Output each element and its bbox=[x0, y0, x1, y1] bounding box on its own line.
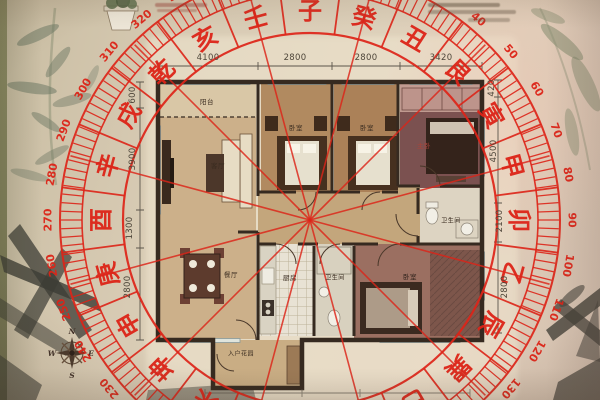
degree-label: 80 bbox=[560, 166, 576, 184]
mountain-char: 酉 bbox=[87, 208, 115, 232]
compass-tick bbox=[457, 29, 470, 45]
mountain-char: 庚 bbox=[91, 259, 124, 289]
dim-left-4: 2800 bbox=[123, 276, 133, 299]
compass-tick bbox=[485, 367, 501, 380]
compass-sector-spoke bbox=[277, 0, 285, 35]
compass-tick bbox=[437, 14, 449, 31]
mountain-char: 子 bbox=[298, 0, 322, 25]
degree-label: 100 bbox=[560, 253, 577, 278]
compass-tick bbox=[150, 29, 163, 45]
compass-tick bbox=[535, 260, 556, 264]
dim-right-3: 2100 bbox=[495, 210, 505, 233]
degree-label: 90 bbox=[566, 212, 579, 228]
compass-tick bbox=[186, 4, 197, 22]
compass-tick bbox=[537, 194, 558, 196]
dim-right-1: 420 bbox=[487, 79, 497, 96]
compass-tick bbox=[518, 313, 537, 322]
compass-tick bbox=[524, 135, 544, 142]
degree-label: 50 bbox=[501, 42, 521, 62]
room-label-bedroom3: 卧室 bbox=[403, 271, 417, 281]
compass-tick bbox=[410, 0, 419, 15]
compass-tick bbox=[171, 14, 183, 31]
compass-ring-circle bbox=[60, 0, 560, 400]
compass-tick bbox=[533, 168, 554, 172]
compass-tick bbox=[507, 96, 525, 107]
compass-center-line bbox=[310, 220, 374, 400]
dim-top-3: 2800 bbox=[355, 53, 378, 63]
mountain-char: 癸 bbox=[348, 1, 380, 35]
degree-label: 250 bbox=[54, 296, 74, 322]
room-label-bath-right: 卫生间 bbox=[441, 216, 461, 225]
compass-tick bbox=[73, 290, 93, 296]
dim-top-2: 2800 bbox=[284, 53, 307, 63]
compass-tick bbox=[507, 334, 525, 345]
compass-tick bbox=[515, 111, 534, 120]
compass-tick bbox=[114, 360, 131, 373]
mountain-char: 未 bbox=[188, 383, 223, 400]
compass-tick bbox=[499, 347, 516, 359]
compass-sector-spoke bbox=[334, 0, 342, 35]
compass-tick bbox=[527, 290, 547, 296]
room-label-living: 客厅 bbox=[211, 160, 225, 170]
compass-tick bbox=[119, 60, 135, 73]
degree-label: 280 bbox=[44, 162, 61, 187]
compass-tick bbox=[518, 119, 537, 128]
compass-tick bbox=[99, 341, 117, 352]
compass-tick bbox=[125, 53, 141, 67]
dim-right-2: 4500 bbox=[489, 140, 499, 163]
dim-top-4: 3420 bbox=[430, 53, 453, 63]
room-label-bedroom1: 卧室 bbox=[289, 122, 303, 132]
compass-tick bbox=[527, 143, 547, 149]
compass-tick bbox=[143, 35, 157, 51]
compass-tick bbox=[125, 373, 141, 387]
compass-tick bbox=[62, 236, 83, 237]
dim-right-4: 2800 bbox=[500, 276, 510, 299]
compass-tick bbox=[66, 267, 87, 271]
compass-tick bbox=[515, 320, 534, 329]
compass-tick bbox=[90, 103, 109, 113]
compass-tick bbox=[119, 367, 135, 380]
compass-tick bbox=[83, 119, 102, 128]
compass-tick bbox=[94, 334, 112, 345]
degree-label: 290 bbox=[54, 117, 74, 143]
compass-tick bbox=[503, 341, 521, 352]
compass-center-line bbox=[246, 220, 310, 400]
compass-tick bbox=[76, 298, 96, 305]
compass-tick bbox=[417, 0, 427, 19]
photo-of-fengshui-floorplan: N E S W 子癸丑艮寅甲卯乙辰巽巳丙午丁未坤申庚酉辛戌乾亥壬01020304… bbox=[0, 0, 600, 400]
mountain-char: 巳 bbox=[397, 383, 432, 400]
room-label-kitchen: 厨房 bbox=[283, 272, 297, 282]
dim-top-1: 4100 bbox=[197, 53, 220, 63]
compass-tick bbox=[535, 177, 556, 181]
illegible-text-smudge bbox=[428, 3, 500, 7]
degree-label: 70 bbox=[547, 121, 565, 140]
compass-tick bbox=[537, 203, 558, 204]
illegible-text-smudge bbox=[157, 9, 197, 12]
compass-tick bbox=[388, 0, 395, 6]
dim-left-1: 600 bbox=[128, 86, 138, 103]
compass-tick bbox=[90, 327, 109, 337]
compass-tick bbox=[490, 360, 507, 373]
compass-tick bbox=[538, 211, 559, 212]
compass-tick bbox=[73, 143, 93, 149]
compass-tick bbox=[104, 81, 121, 93]
mountain-char: 辛 bbox=[91, 151, 124, 181]
room-label-bedroom2: 卧室 bbox=[360, 122, 374, 132]
compass-tick bbox=[537, 244, 558, 246]
compass-tick bbox=[104, 347, 121, 359]
degree-label: 270 bbox=[42, 208, 55, 231]
compass-tick bbox=[157, 24, 170, 41]
compass-tick bbox=[65, 260, 86, 264]
compass-tick bbox=[479, 53, 495, 67]
mountain-char: 申 bbox=[111, 307, 147, 342]
compass-tick bbox=[86, 111, 105, 120]
compass-tick bbox=[537, 236, 558, 237]
mountain-char: 卯 bbox=[505, 208, 533, 232]
compass-tick bbox=[533, 267, 554, 271]
illegible-text-smudge bbox=[428, 10, 516, 14]
room-label-master: 主卧 bbox=[417, 140, 431, 150]
compass-tick bbox=[225, 0, 232, 6]
compass-tick bbox=[61, 211, 82, 212]
mountain-char: 寅 bbox=[473, 98, 509, 133]
compass-tick bbox=[86, 320, 105, 329]
mountain-char: 甲 bbox=[495, 151, 528, 181]
compass-tick bbox=[61, 228, 82, 229]
compass-tick bbox=[524, 298, 544, 305]
illegible-text-smudge bbox=[155, 3, 207, 7]
compass-tick bbox=[450, 24, 463, 41]
dim-left-2: 3900 bbox=[128, 148, 138, 171]
dim-left-3: 1300 bbox=[125, 217, 135, 240]
compass-tick bbox=[65, 177, 86, 181]
compass-tick bbox=[66, 168, 87, 172]
compass-tick bbox=[503, 88, 521, 99]
degree-label: 60 bbox=[527, 79, 546, 99]
mountain-char: 壬 bbox=[241, 1, 271, 34]
compass-tick bbox=[479, 373, 495, 387]
room-label-balcony: 阳台 bbox=[200, 96, 214, 106]
degree-label: 260 bbox=[44, 253, 61, 278]
room-label-entry: 入户花园 bbox=[228, 349, 254, 358]
room-label-bath-mid: 卫生间 bbox=[325, 273, 345, 282]
compass-tick bbox=[403, 0, 412, 12]
compass-tick bbox=[62, 203, 83, 204]
compass-tick bbox=[83, 313, 102, 322]
compass-tick bbox=[538, 228, 559, 229]
compass-tick bbox=[99, 88, 117, 99]
compass-tick bbox=[94, 96, 112, 107]
compass-tick bbox=[209, 0, 218, 12]
compass-tick bbox=[114, 67, 131, 80]
compass-tick bbox=[62, 244, 83, 246]
compass-tick bbox=[490, 67, 507, 80]
room-label-dining: 餐厅 bbox=[224, 269, 238, 279]
illegible-text-smudge bbox=[468, 18, 510, 22]
compass-tick bbox=[499, 81, 516, 93]
compass-tick bbox=[511, 103, 530, 113]
compass-tick bbox=[511, 327, 530, 337]
compass-tick bbox=[485, 60, 501, 73]
mountain-char: 丑 bbox=[397, 21, 432, 57]
mountain-char: 亥 bbox=[188, 21, 223, 57]
mountain-char: 辰 bbox=[473, 307, 509, 342]
compass-tick bbox=[76, 135, 96, 142]
compass-tick bbox=[62, 194, 83, 196]
degree-label: 110 bbox=[546, 297, 566, 323]
compass-tick bbox=[463, 35, 477, 51]
